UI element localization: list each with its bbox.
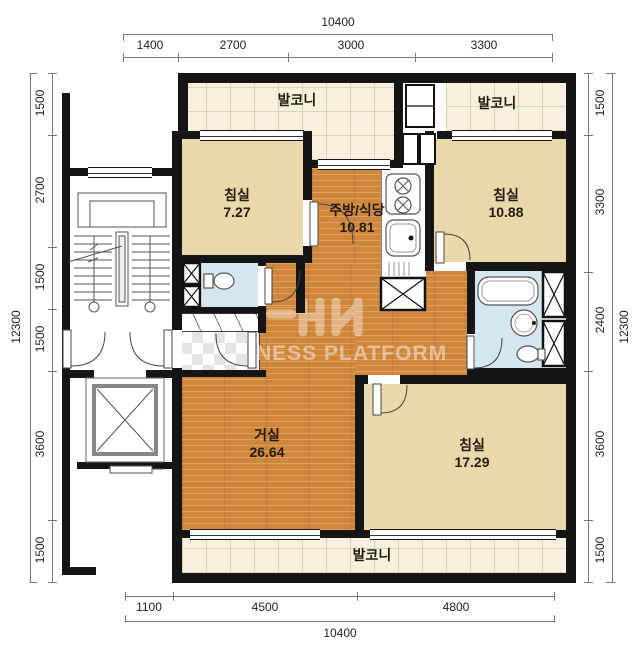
bathroom-main-door-opening bbox=[467, 334, 475, 370]
wall-stairhall-bottom-stub bbox=[62, 567, 96, 575]
bedroom-right-door-opening bbox=[434, 262, 466, 271]
dim-tick bbox=[48, 371, 57, 372]
label-bedroom-right: 침실 10.88 bbox=[456, 187, 556, 221]
stair-rail-lines bbox=[94, 236, 150, 302]
window-bedroom-small bbox=[200, 130, 304, 141]
label-living-room: 거실 26.64 bbox=[217, 427, 317, 461]
dim-tick bbox=[30, 582, 37, 583]
dim-line-top-overall bbox=[123, 34, 553, 35]
dim-tick bbox=[584, 272, 593, 273]
label-balcony-top-right: 발코니 bbox=[447, 95, 547, 112]
dim-left-overall: 12300 bbox=[9, 295, 23, 359]
stair-direction-arrow bbox=[68, 244, 122, 262]
small-bath-shaft-xbox-2 bbox=[183, 286, 200, 307]
dim-top-seg-2: 3000 bbox=[319, 38, 383, 52]
room-area: 26.64 bbox=[217, 444, 317, 461]
room-name: 침실 bbox=[187, 187, 287, 204]
wall-balcony-left bbox=[178, 73, 188, 135]
dim-line-left-overall bbox=[30, 73, 31, 583]
dim-tick bbox=[606, 73, 615, 74]
wall-bathroom-small-bottom bbox=[172, 307, 258, 313]
wall-bathroom-main-bottom bbox=[467, 368, 576, 375]
stair-treads bbox=[74, 236, 170, 300]
dim-tick bbox=[584, 520, 593, 521]
wall-bedroom-small-bottom bbox=[172, 255, 312, 263]
bathroom-small-door-opening bbox=[258, 266, 266, 306]
label-bedroom-small: 침실 7.27 bbox=[187, 187, 287, 221]
dim-left-seg-2: 1500 bbox=[33, 245, 47, 309]
window-bedroom-master bbox=[370, 529, 556, 540]
dim-tick bbox=[48, 309, 57, 310]
small-bath-shaft-xbox-1 bbox=[183, 263, 200, 284]
dim-tick bbox=[48, 135, 57, 136]
wall-stairhall-left bbox=[62, 93, 70, 575]
dim-right-seg-1: 3300 bbox=[593, 170, 607, 234]
dim-tick bbox=[288, 53, 289, 62]
dim-tick bbox=[584, 582, 593, 583]
dim-right-seg-0: 1500 bbox=[593, 71, 607, 135]
dim-bottom-overall: 10400 bbox=[308, 626, 372, 640]
dim-tick bbox=[552, 53, 553, 62]
dim-top-seg-1: 2700 bbox=[201, 38, 265, 52]
room-name: 침실 bbox=[422, 437, 522, 454]
wall-living-bedroom-divider bbox=[355, 375, 364, 538]
dim-left-seg-0: 1500 bbox=[33, 71, 47, 135]
dim-tick bbox=[178, 53, 179, 62]
dim-tick bbox=[48, 247, 57, 248]
dim-left-seg-3: 1500 bbox=[33, 307, 47, 371]
wall-bottom-exterior bbox=[172, 573, 576, 583]
label-balcony-top-left: 발코니 bbox=[247, 92, 347, 109]
dim-line-right-segments bbox=[588, 73, 589, 583]
staircase bbox=[68, 193, 170, 312]
dim-right-seg-2: 2400 bbox=[593, 288, 607, 352]
wall-elevator-left-stub bbox=[70, 370, 94, 378]
room-area: 10.88 bbox=[456, 204, 556, 221]
room-area: 17.29 bbox=[422, 454, 522, 471]
bathroom-small-floor bbox=[202, 263, 258, 307]
door-stairhall-right bbox=[130, 330, 172, 368]
wall-top-exterior bbox=[178, 73, 576, 83]
window-stairhall bbox=[88, 167, 152, 178]
dim-tick bbox=[552, 34, 553, 41]
dim-right-seg-3: 3600 bbox=[593, 412, 607, 476]
room-area: 10.81 bbox=[297, 219, 417, 236]
dim-tick bbox=[48, 582, 57, 583]
wall-kitchen-stub bbox=[296, 263, 305, 313]
bath-shaft-xbox-2 bbox=[543, 321, 565, 366]
dim-left-seg-1: 2700 bbox=[33, 158, 47, 222]
watermark-text: NESS PLATFORM bbox=[256, 342, 447, 366]
dim-tick bbox=[584, 371, 593, 372]
label-balcony-bottom: 발코니 bbox=[322, 547, 422, 564]
dim-top-overall: 10400 bbox=[306, 15, 370, 29]
bathroom-main-floor bbox=[475, 271, 543, 368]
dim-tick bbox=[554, 615, 555, 622]
dim-right-overall: 12300 bbox=[617, 295, 631, 359]
entry-door-opening bbox=[172, 330, 182, 368]
room-name: 거실 bbox=[217, 427, 317, 444]
dim-line-left-segments bbox=[52, 73, 53, 583]
mid-shaft-cell-1 bbox=[403, 134, 418, 164]
dim-left-seg-5: 1500 bbox=[33, 518, 47, 582]
wall-elevator-right-stub bbox=[146, 370, 172, 378]
dim-tick bbox=[584, 135, 593, 136]
dim-right-seg-4: 1500 bbox=[593, 518, 607, 582]
room-name: 침실 bbox=[456, 187, 556, 204]
dim-tick bbox=[415, 53, 416, 62]
bath-shaft-xbox-1 bbox=[543, 272, 565, 317]
dim-tick bbox=[48, 73, 57, 74]
room-name: 주방/식당 bbox=[297, 202, 417, 219]
wall-right-exterior bbox=[566, 73, 576, 583]
entry-shoe-closet bbox=[180, 313, 260, 333]
dim-line-top-segments bbox=[123, 57, 553, 58]
dim-tick bbox=[48, 520, 57, 521]
dim-bottom-seg-0: 1100 bbox=[117, 600, 181, 614]
label-kitchen-dining: 주방/식당 10.81 bbox=[297, 202, 417, 236]
window-bedroom-right bbox=[452, 130, 552, 141]
elevator bbox=[86, 378, 164, 473]
bedroom-master-door-opening bbox=[368, 375, 400, 384]
floor-plan-canvas: NESS PLATFORM bbox=[0, 0, 640, 655]
dim-top-seg-0: 1400 bbox=[118, 38, 182, 52]
dim-tick bbox=[125, 615, 126, 622]
dim-line-bottom-segments bbox=[125, 596, 555, 597]
window-living-room bbox=[190, 529, 320, 540]
dim-tick bbox=[606, 582, 615, 583]
entry-hall-floor bbox=[180, 331, 260, 372]
dim-bottom-seg-1: 4500 bbox=[233, 600, 297, 614]
wall-entry-bottom bbox=[172, 370, 266, 377]
upper-shaft-cells bbox=[406, 85, 434, 127]
wall-between-balconies bbox=[394, 73, 403, 168]
dim-line-bottom-overall bbox=[125, 621, 555, 622]
label-bedroom-master: 침실 17.29 bbox=[422, 437, 522, 471]
window-kitchen bbox=[318, 159, 390, 170]
dim-top-seg-3: 3300 bbox=[452, 38, 516, 52]
dim-tick bbox=[357, 592, 358, 601]
wall-below-elevator bbox=[77, 462, 172, 469]
dim-bottom-seg-2: 4800 bbox=[424, 600, 488, 614]
dim-line-right-overall bbox=[612, 73, 613, 583]
dim-tick bbox=[123, 53, 124, 62]
dim-tick bbox=[554, 592, 555, 601]
dim-left-seg-4: 3600 bbox=[33, 412, 47, 476]
room-area: 7.27 bbox=[187, 204, 287, 221]
wall-bedroom-right-left bbox=[425, 131, 434, 271]
dim-tick bbox=[584, 73, 593, 74]
